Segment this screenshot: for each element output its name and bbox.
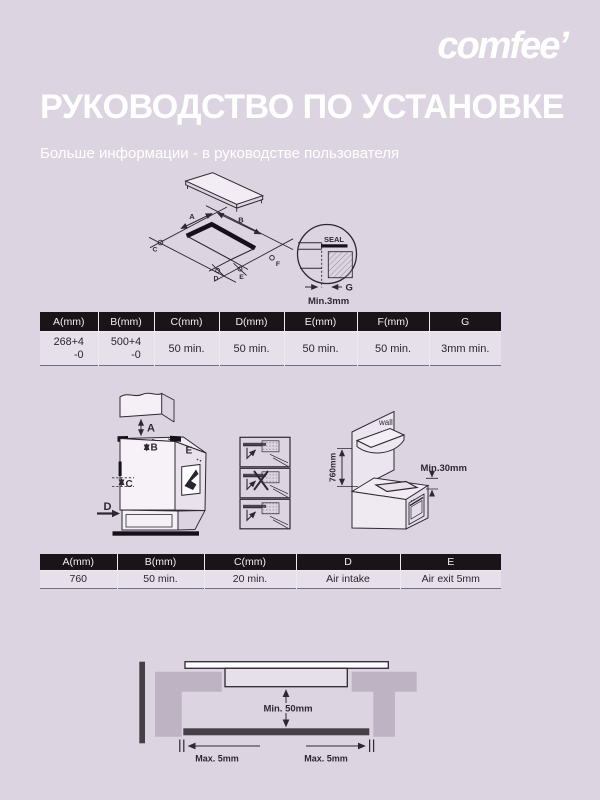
clearance-label-b: B [151,443,158,454]
seal-label: SEAL [324,235,344,244]
cutout-label-c: C [153,247,158,254]
table2-header-e: E [400,554,501,570]
page-subtitle: Больше информации - в руководстве пользо… [40,146,399,161]
seal-detail [298,225,357,288]
table1-header-f: F(mm) [357,312,429,332]
table1-header-d: D(mm) [219,312,284,332]
cross-section-diagram: Min. 50mm Max. 5mm Max. 5mm [110,640,490,780]
cutout-label-f: F [276,261,280,268]
bottom-shelf-bar [183,728,369,735]
hob-body-box [225,668,347,686]
cutout-dimensions-table: A(mm) B(mm) C(mm) D(mm) E(mm) F(mm) G 26… [40,312,501,366]
clearance-diagram: A B E C D [85,380,495,545]
cutout-diagram: A B C F D E SEAL G Min.3mm [130,160,380,310]
clearance-label-a: A [147,423,155,435]
min-50mm-label: Min. 50mm [263,704,312,715]
min-top-gap-label: Min.30mm [421,463,467,474]
table2-cell-c: 20 min. [204,570,296,589]
counter-right-block [352,672,417,737]
install-detail-incorrect [240,468,290,498]
table2-header-c: C(mm) [204,554,296,570]
table1-header-b: B(mm) [98,312,154,332]
install-detail-boxes [240,437,290,529]
table2-cell-b: 50 min. [117,570,204,589]
page-title: РУКОВОДСТВО ПО УСТАНОВКЕ [40,90,564,124]
table1-cell-g: 3mm min. [429,332,501,366]
table1-header-a: A(mm) [40,312,98,332]
counter-left-block [155,672,222,737]
cutout-label-b: B [238,216,244,225]
table1-cell-d: 50 min. [219,332,284,366]
table2-cell-e: Air exit 5mm [400,570,501,589]
wall-label: wall [378,418,393,427]
clearance-label-c: C [126,479,133,490]
install-detail-correct-top [240,437,290,467]
install-detail-correct-bottom [240,499,290,529]
table1-header-row: A(mm) B(mm) C(mm) D(mm) E(mm) F(mm) G [40,312,501,332]
wall-height-label: 760mm [328,452,338,482]
ventilation-table: A(mm) B(mm) C(mm) D E 760 50 min. 20 min… [40,554,501,589]
table1-cell-e: 50 min. [284,332,357,366]
cabinet-side-view [97,393,206,535]
manual-page: comfee’ РУКОВОДСТВО ПО УСТАНОВКЕ Больше … [0,0,600,800]
table1-header-e: E(mm) [284,312,357,332]
seal-gap-label: G [346,283,353,294]
max-5mm-left-label: Max. 5mm [195,754,239,764]
hob-glass-bar [185,662,388,669]
hob-glass-panel [186,173,263,212]
table2-header-row: A(mm) B(mm) C(mm) D E [40,554,501,570]
max-5mm-right-label: Max. 5mm [304,754,348,764]
wall-bar [139,662,145,744]
table1-cell-f: 50 min. [357,332,429,366]
table2-header-a: A(mm) [40,554,117,570]
cutout-label-e: E [239,274,244,281]
table2-header-b: B(mm) [117,554,204,570]
table1-cell-a: 268+4-0 [40,332,98,366]
table2-cell-d: Air intake [296,570,400,589]
cutout-label-d: D [214,276,219,283]
table1-header-g: G [429,312,501,332]
table1-cell-c: 50 min. [154,332,219,366]
clearance-label-e: E [186,446,193,457]
cutout-label-a: A [189,212,195,221]
table2-value-row: 760 50 min. 20 min. Air intake Air exit … [40,570,501,589]
table2-cell-a: 760 [40,570,117,589]
table1-value-row: 268+4-0 500+4-0 50 min. 50 min. 50 min. … [40,332,501,366]
counter-cutout [149,206,293,283]
table2-header-d: D [296,554,400,570]
table1-header-c: C(mm) [154,312,219,332]
seal-gap-note: Min.3mm [308,296,349,307]
clearance-label-d: D [104,501,112,513]
comfee-logo: comfee’ [437,27,567,65]
